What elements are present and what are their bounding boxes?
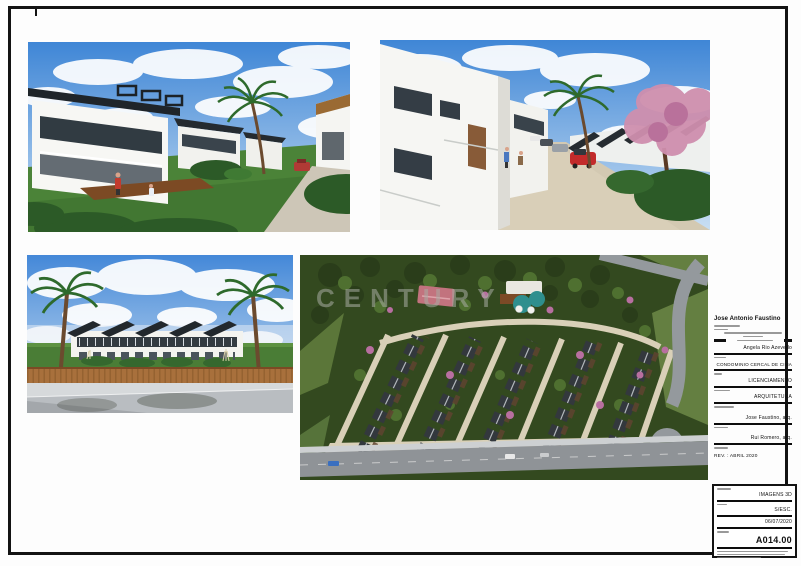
field-label-illegible — [714, 357, 726, 359]
row-date: 06/07/2020 — [717, 519, 792, 529]
project-name: CONDOMINIO CERCAL DE CIMA — [714, 361, 792, 368]
row-label-illegible — [717, 504, 727, 506]
field-designed-by: Jose Faustino, arq. — [714, 415, 792, 429]
drawing-title: IMAGENS 3D — [717, 492, 792, 499]
render-garden-perspective — [28, 42, 350, 232]
scale-value: S/ESC. — [717, 507, 792, 514]
render-elevation-illustration — [27, 255, 293, 413]
row-label-illegible — [717, 488, 731, 490]
render-aerial-site-plan: CENTURY — [300, 255, 708, 480]
render-garden-illustration — [28, 42, 350, 232]
row-scale: S/ESC. — [717, 504, 792, 518]
field-label-illegible — [714, 406, 734, 408]
architect-subtitle-illegible — [714, 325, 740, 327]
row-label-illegible — [717, 531, 729, 533]
designer-name: Jose Faustino, arq. — [714, 415, 792, 422]
field-specialty: ARQUITETURA — [714, 394, 792, 408]
specialty-name: ARQUITETURA — [714, 394, 792, 401]
field-client: Angela Rio Azevedo — [714, 345, 792, 359]
render-street-view — [380, 40, 710, 230]
address-line-illegible — [724, 332, 782, 334]
disclaimer-fine-print — [717, 551, 792, 559]
drawing-sheet: CENTURY Jose Antonio Faustino Angela Rio… — [0, 0, 801, 566]
aerial-illustration: CENTURY — [300, 255, 708, 480]
field-label-illegible — [714, 427, 728, 429]
field-label-illegible — [714, 447, 728, 449]
date-value: 06/07/2020 — [717, 519, 792, 526]
render-elevation-view — [27, 255, 293, 413]
contact-row — [714, 339, 792, 342]
revision-note: REV. : ABRIL 2020 — [714, 454, 792, 459]
sheet-info-block: IMAGENS 3D S/ESC. 06/07/2020 A014.00 — [712, 484, 797, 558]
field-drawn-by: Rui Romero, arq. — [714, 435, 792, 449]
sheet-number: A014.00 — [717, 535, 792, 546]
field-label-illegible — [714, 373, 722, 375]
field-phase: LICENCIAMENTO — [714, 378, 792, 392]
address-line2-illegible — [743, 336, 763, 338]
watermark-text: CENTURY — [316, 283, 504, 313]
field-label-illegible — [714, 390, 730, 392]
fold-mark — [35, 9, 37, 16]
palm-shadow — [137, 393, 217, 409]
client-name: Angela Rio Azevedo — [714, 345, 792, 352]
draftsman-name: Rui Romero, arq. — [714, 435, 792, 442]
phase-name: LICENCIAMENTO — [714, 378, 792, 385]
render-street-illustration — [380, 40, 710, 230]
license-number-illegible — [714, 329, 728, 331]
field-project: CONDOMINIO CERCAL DE CIMA — [714, 361, 792, 375]
title-block: Jose Antonio Faustino Angela Rio Azevedo… — [714, 316, 792, 459]
row-sheet-number: A014.00 — [717, 531, 792, 549]
row-drawing-title: IMAGENS 3D — [717, 488, 792, 502]
architect-name: Jose Antonio Faustino — [714, 316, 792, 323]
